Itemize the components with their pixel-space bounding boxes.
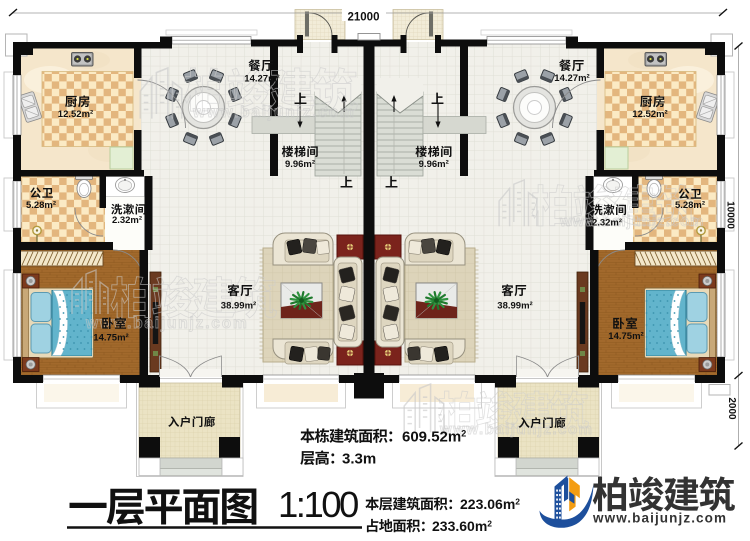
- svg-text:14.27m²: 14.27m²: [244, 74, 279, 85]
- svg-text:2.32m²: 2.32m²: [112, 215, 142, 226]
- svg-text:www.baijunjz.com: www.baijunjz.com: [559, 214, 704, 230]
- svg-text:5.28m²: 5.28m²: [675, 200, 705, 211]
- svg-text:38.99m²: 38.99m²: [497, 301, 532, 312]
- svg-text:10000: 10000: [725, 201, 736, 229]
- svg-text:609.52m2: 609.52m2: [402, 429, 466, 446]
- svg-text:14.75m²: 14.75m²: [93, 333, 128, 344]
- svg-text:2.32m²: 2.32m²: [592, 218, 622, 229]
- svg-text:233.60m2: 233.60m2: [432, 518, 492, 534]
- svg-text:9.96m²: 9.96m²: [285, 159, 315, 170]
- svg-text:1:100: 1:100: [278, 484, 358, 525]
- svg-text:38.99m²: 38.99m²: [221, 301, 256, 312]
- svg-text:12.52m²: 12.52m²: [632, 109, 667, 120]
- svg-text:www.baijunjz.com: www.baijunjz.com: [192, 104, 356, 121]
- svg-text:21000: 21000: [348, 12, 380, 24]
- svg-text:www.baijunjz.com: www.baijunjz.com: [592, 511, 727, 526]
- svg-text:2000: 2000: [726, 397, 737, 420]
- svg-text:12.52m²: 12.52m²: [58, 109, 93, 120]
- svg-text:9.96m²: 9.96m²: [419, 159, 449, 170]
- svg-text:5.28m²: 5.28m²: [26, 200, 56, 211]
- svg-text:3.3m: 3.3m: [342, 451, 376, 468]
- svg-text:223.06m2: 223.06m2: [460, 496, 520, 512]
- svg-text:14.27m²: 14.27m²: [554, 73, 589, 84]
- svg-text:14.75m²: 14.75m²: [608, 331, 643, 342]
